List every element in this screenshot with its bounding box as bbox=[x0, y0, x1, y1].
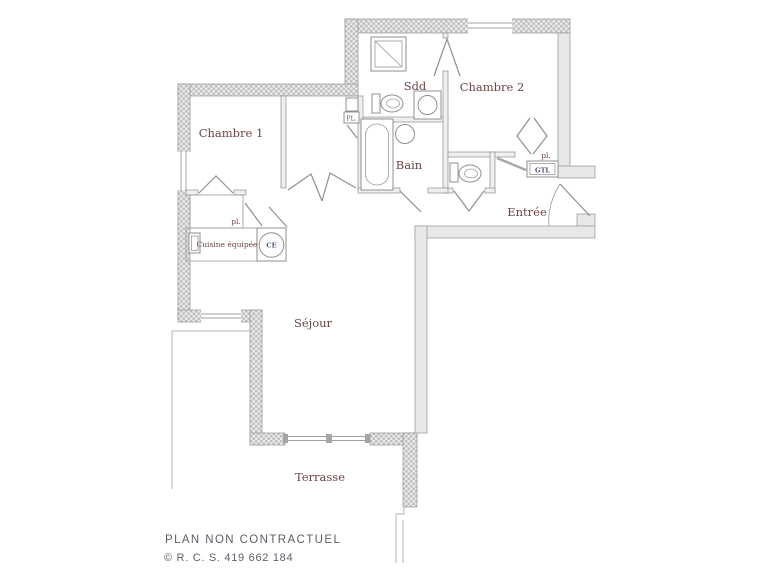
label-pl-entree: pl. bbox=[541, 151, 551, 160]
door-closet-leaf bbox=[245, 203, 262, 226]
room-label-sejour: Séjour bbox=[294, 316, 333, 330]
room-label-bain: Bain bbox=[396, 158, 423, 172]
toilet-sdd-icon bbox=[372, 94, 403, 113]
basin-icon bbox=[396, 125, 415, 144]
room-label-cuisine: Cuisine équipée bbox=[196, 240, 258, 249]
footer-disclaimer: PLAN NON CONTRACTUEL bbox=[165, 534, 341, 546]
closet-bifold-chambre2 bbox=[517, 118, 547, 154]
footer-rcs: © R. C. S. 419 662 184 bbox=[164, 552, 293, 564]
window-top bbox=[468, 17, 512, 35]
room-label-chambre2: Chambre 2 bbox=[460, 80, 525, 94]
toilet-wc-icon bbox=[450, 163, 481, 182]
room-label-sdd: Sdd bbox=[404, 79, 427, 93]
washing-machine-icon bbox=[414, 91, 441, 119]
terrace-boundary bbox=[172, 331, 404, 563]
bathtub-icon bbox=[361, 119, 393, 190]
room-label-chambre1: Chambre 1 bbox=[199, 126, 264, 140]
label-gtl: GTL bbox=[535, 167, 550, 175]
window-chambre1 bbox=[176, 152, 192, 190]
bay-window-sejour bbox=[283, 434, 370, 443]
floor-plan-page: Chambre 1 Sdd Chambre 2 Bain Entrée Séjo… bbox=[0, 0, 767, 576]
door-bain-leaf bbox=[400, 191, 421, 212]
window-sejour-west bbox=[201, 308, 241, 324]
label-ce: CE bbox=[266, 242, 276, 250]
label-pl-chambre1: pl. bbox=[231, 217, 241, 226]
label-pl-box: PL. bbox=[347, 116, 357, 123]
door-chambre2 bbox=[434, 39, 460, 76]
door-wc bbox=[454, 191, 484, 211]
shower-icon bbox=[371, 37, 406, 71]
double-door-hall bbox=[288, 173, 356, 201]
door-chambre1 bbox=[199, 176, 233, 193]
floor-plan-svg: Chambre 1 Sdd Chambre 2 Bain Entrée Séjo… bbox=[0, 0, 767, 576]
door-pl-leaf bbox=[347, 125, 357, 138]
door-sejour-leaf bbox=[269, 207, 287, 227]
room-label-terrasse: Terrasse bbox=[295, 470, 345, 484]
room-label-entree: Entrée bbox=[507, 205, 547, 219]
